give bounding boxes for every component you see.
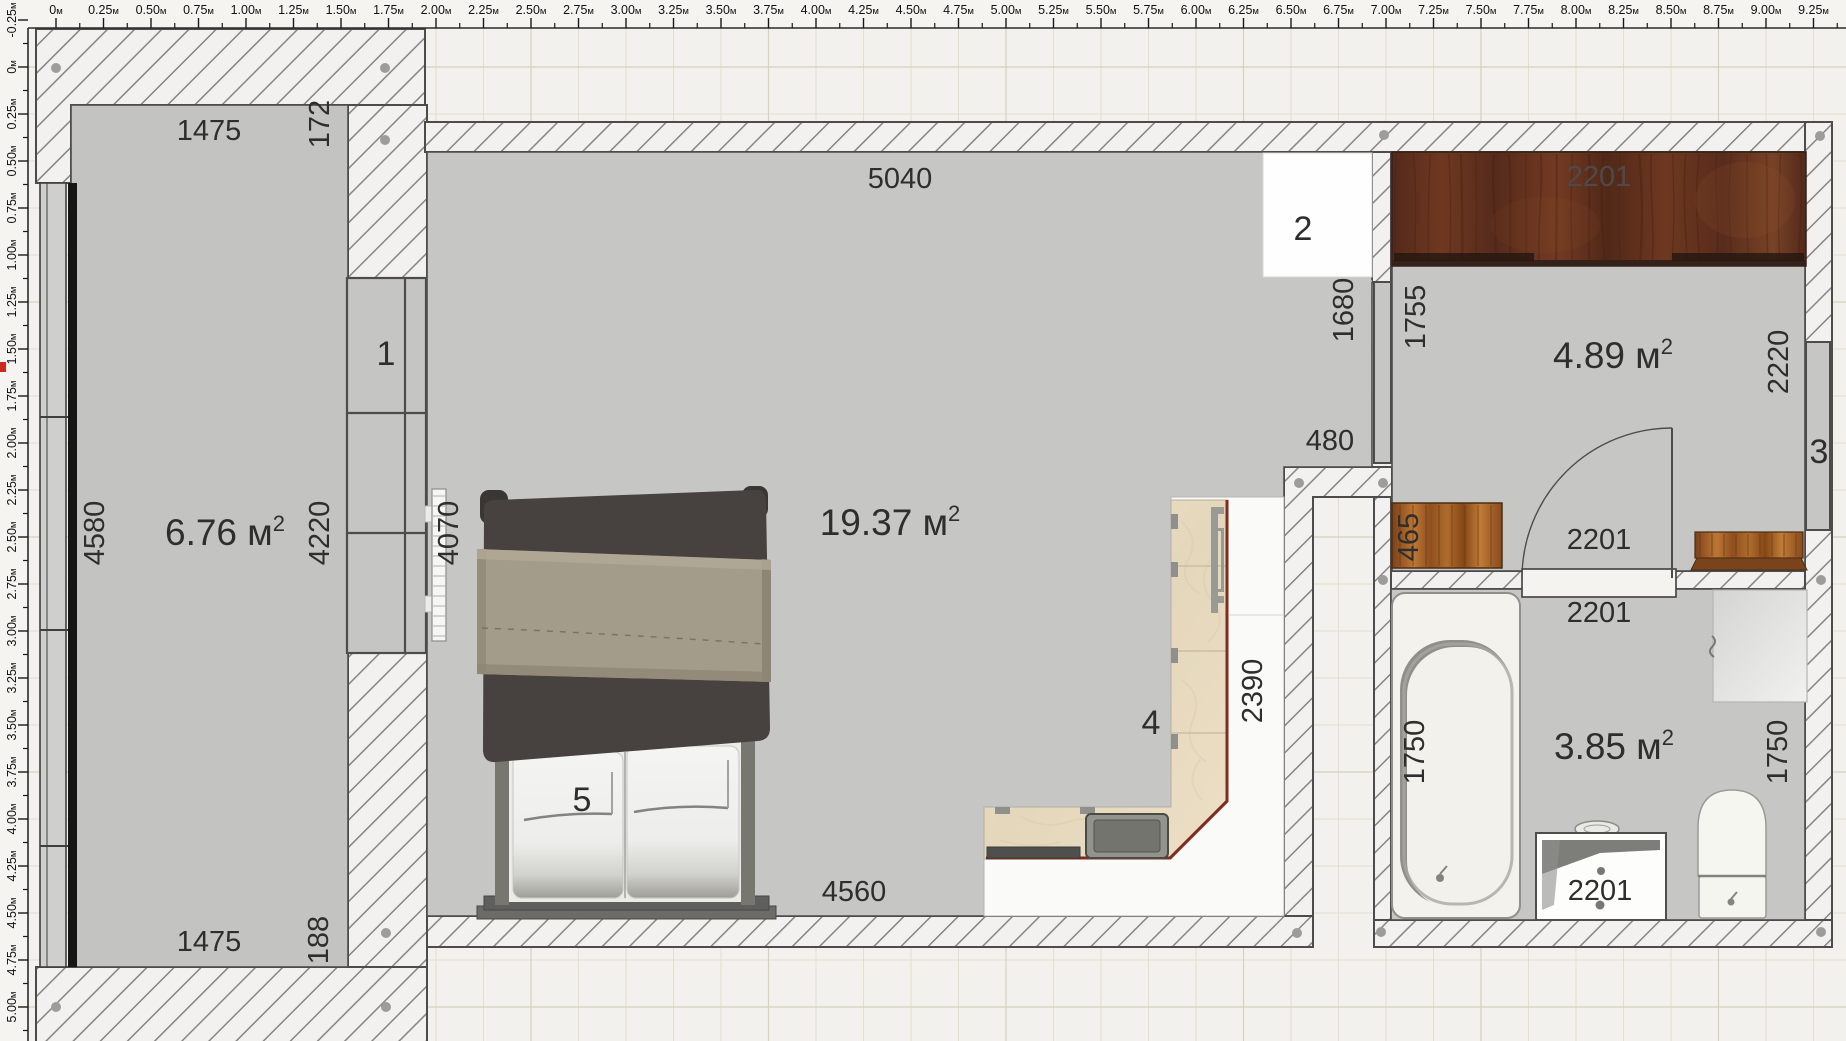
svg-text:-0.25м: -0.25м: [5, 2, 19, 37]
svg-text:1475: 1475: [177, 115, 242, 147]
svg-text:2201: 2201: [1567, 597, 1632, 629]
svg-text:1475: 1475: [177, 926, 242, 958]
svg-text:0.25м: 0.25м: [5, 99, 19, 130]
svg-text:4.50м: 4.50м: [5, 898, 19, 929]
svg-text:1750: 1750: [1399, 720, 1431, 785]
svg-text:3: 3: [1810, 433, 1829, 471]
svg-text:188: 188: [303, 916, 335, 964]
svg-text:3.25м: 3.25м: [5, 663, 19, 694]
svg-text:0м: 0м: [5, 60, 19, 73]
svg-text:2201: 2201: [1568, 875, 1633, 907]
svg-text:2201: 2201: [1567, 161, 1632, 193]
svg-text:1.75м: 1.75м: [373, 3, 404, 17]
svg-text:5: 5: [573, 781, 592, 819]
svg-text:4.89 м2: 4.89 м2: [1553, 334, 1673, 376]
svg-text:4.75м: 4.75м: [943, 3, 974, 17]
svg-text:4220: 4220: [304, 501, 336, 566]
svg-text:4.00м: 4.00м: [801, 3, 832, 17]
svg-text:6.76 м2: 6.76 м2: [165, 511, 285, 553]
svg-text:3.25м: 3.25м: [658, 3, 689, 17]
svg-text:8.25м: 8.25м: [1608, 3, 1639, 17]
svg-text:1.25м: 1.25м: [5, 287, 19, 318]
svg-text:480: 480: [1306, 425, 1354, 457]
svg-text:1.25м: 1.25м: [278, 3, 309, 17]
svg-text:4: 4: [1142, 704, 1161, 742]
svg-text:6.75м: 6.75м: [1323, 3, 1354, 17]
svg-text:7.25м: 7.25м: [1418, 3, 1449, 17]
svg-text:8.50м: 8.50м: [1656, 3, 1687, 17]
svg-text:6.25м: 6.25м: [1228, 3, 1259, 17]
svg-text:2390: 2390: [1237, 659, 1269, 724]
svg-text:1.50м: 1.50м: [5, 334, 19, 365]
svg-text:2.00м: 2.00м: [421, 3, 452, 17]
svg-text:2.50м: 2.50м: [516, 3, 547, 17]
svg-text:4070: 4070: [433, 501, 465, 566]
svg-text:4.75м: 4.75м: [5, 945, 19, 976]
svg-text:3.85 м2: 3.85 м2: [1554, 725, 1674, 767]
svg-text:5.00м: 5.00м: [991, 3, 1022, 17]
svg-text:3.50м: 3.50м: [706, 3, 737, 17]
svg-text:2220: 2220: [1763, 330, 1795, 395]
svg-text:465: 465: [1393, 513, 1425, 561]
svg-text:2.75м: 2.75м: [5, 569, 19, 600]
svg-text:2.50м: 2.50м: [5, 522, 19, 553]
svg-text:2.25м: 2.25м: [468, 3, 499, 17]
svg-text:3.75м: 3.75м: [753, 3, 784, 17]
svg-text:0.75м: 0.75м: [183, 3, 214, 17]
svg-text:3.75м: 3.75м: [5, 757, 19, 788]
svg-text:1680: 1680: [1328, 278, 1360, 343]
svg-text:2: 2: [1294, 210, 1313, 248]
svg-text:0.50м: 0.50м: [5, 146, 19, 177]
svg-text:8.00м: 8.00м: [1561, 3, 1592, 17]
svg-text:3.00м: 3.00м: [611, 3, 642, 17]
svg-text:5.00м: 5.00м: [5, 992, 19, 1023]
svg-text:1755: 1755: [1400, 285, 1432, 350]
svg-text:1: 1: [377, 335, 396, 373]
svg-text:1.50м: 1.50м: [326, 3, 357, 17]
svg-text:0.50м: 0.50м: [136, 3, 167, 17]
svg-text:5.25м: 5.25м: [1038, 3, 1069, 17]
svg-text:2.75м: 2.75м: [563, 3, 594, 17]
svg-text:1750: 1750: [1762, 720, 1794, 785]
svg-text:5040: 5040: [868, 163, 933, 195]
svg-text:4.25м: 4.25м: [5, 851, 19, 882]
svg-text:1.00м: 1.00м: [231, 3, 262, 17]
svg-text:6.50м: 6.50м: [1276, 3, 1307, 17]
svg-text:4.25м: 4.25м: [848, 3, 879, 17]
svg-text:4560: 4560: [822, 876, 887, 908]
svg-text:4.50м: 4.50м: [896, 3, 927, 17]
svg-text:1.00м: 1.00м: [5, 240, 19, 271]
svg-text:7.00м: 7.00м: [1371, 3, 1402, 17]
svg-text:8.75м: 8.75м: [1703, 3, 1734, 17]
svg-text:9.00м: 9.00м: [1751, 3, 1782, 17]
svg-text:0.75м: 0.75м: [5, 193, 19, 224]
svg-text:0.25м: 0.25м: [88, 3, 119, 17]
svg-text:5.50м: 5.50м: [1086, 3, 1117, 17]
svg-text:6.00м: 6.00м: [1181, 3, 1212, 17]
svg-text:1.75м: 1.75м: [5, 381, 19, 412]
svg-text:9.25м: 9.25м: [1798, 3, 1829, 17]
svg-text:7.75м: 7.75м: [1513, 3, 1544, 17]
svg-text:0м: 0м: [49, 3, 62, 17]
svg-text:19.37 м2: 19.37 м2: [820, 501, 961, 543]
svg-text:3.00м: 3.00м: [5, 616, 19, 647]
svg-text:4.00м: 4.00м: [5, 804, 19, 835]
svg-text:2201: 2201: [1567, 524, 1632, 556]
svg-text:2.00м: 2.00м: [5, 428, 19, 459]
svg-text:2.25м: 2.25м: [5, 475, 19, 506]
svg-text:3.50м: 3.50м: [5, 710, 19, 741]
svg-text:7.50м: 7.50м: [1466, 3, 1497, 17]
svg-text:5.75м: 5.75м: [1133, 3, 1164, 17]
svg-text:4580: 4580: [79, 501, 111, 566]
svg-text:172: 172: [304, 100, 336, 148]
